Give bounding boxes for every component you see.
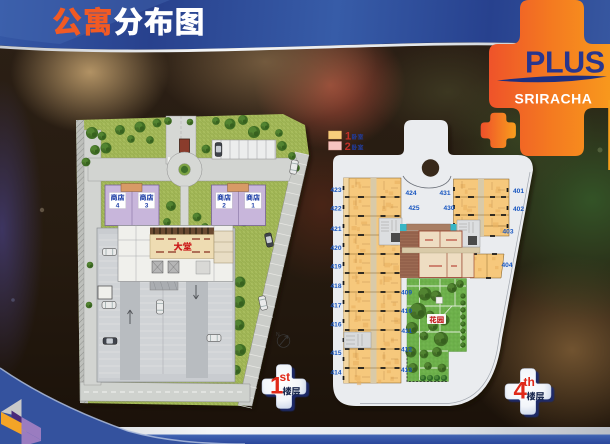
svg-text:413: 413 <box>401 367 412 374</box>
svg-text:425: 425 <box>409 205 420 212</box>
svg-text:420: 420 <box>330 245 341 252</box>
svg-text:st: st <box>280 370 291 384</box>
svg-text:417: 417 <box>330 303 341 310</box>
svg-text:419: 419 <box>330 264 341 271</box>
svg-text:PLUS: PLUS <box>525 46 605 80</box>
svg-text:404: 404 <box>502 262 513 269</box>
svg-text:416: 416 <box>330 322 341 329</box>
svg-text:3: 3 <box>145 203 149 210</box>
svg-text:431: 431 <box>440 190 451 197</box>
svg-text:N: N <box>276 332 280 338</box>
svg-text:SRIRACHA: SRIRACHA <box>515 91 593 107</box>
svg-text:410: 410 <box>401 308 412 315</box>
svg-text:1: 1 <box>251 203 255 210</box>
svg-text:409: 409 <box>401 290 412 297</box>
svg-text:2: 2 <box>222 203 226 210</box>
svg-text:418: 418 <box>330 283 341 290</box>
svg-text:424: 424 <box>406 190 417 197</box>
svg-text:401: 401 <box>513 188 524 195</box>
svg-text:402: 402 <box>513 206 524 213</box>
svg-text:415: 415 <box>330 350 341 357</box>
svg-text:421: 421 <box>330 226 341 233</box>
svg-text:423: 423 <box>330 187 341 194</box>
svg-text:4: 4 <box>116 203 120 210</box>
svg-text:414: 414 <box>330 370 341 377</box>
svg-text:403: 403 <box>503 229 514 236</box>
svg-text:th: th <box>524 375 535 389</box>
svg-text:411: 411 <box>401 328 412 335</box>
svg-text:422: 422 <box>330 206 341 213</box>
svg-text:2: 2 <box>345 141 351 153</box>
svg-text:430: 430 <box>444 205 455 212</box>
svg-text:412: 412 <box>401 347 412 354</box>
